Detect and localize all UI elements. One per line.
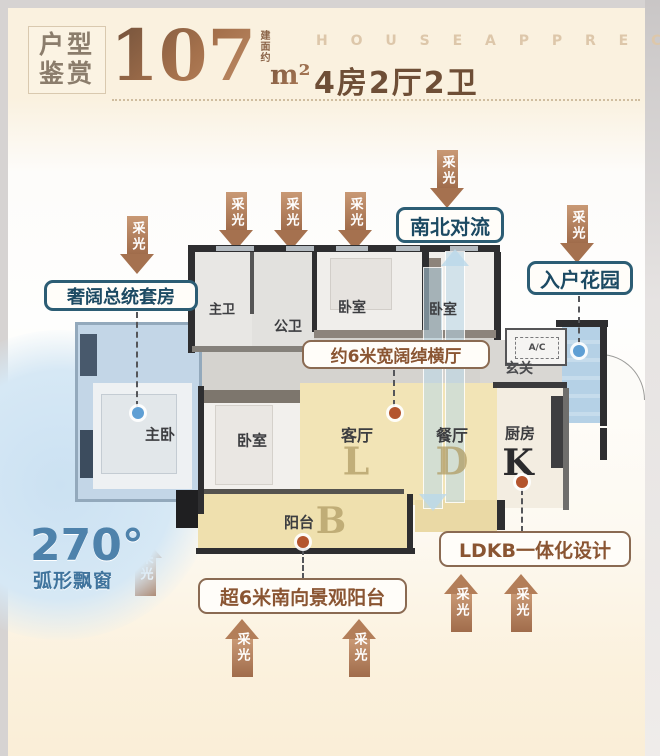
- connector-south-balcony: [302, 549, 304, 579]
- window-top-2: [286, 246, 314, 251]
- callout-entry-garden: 入户花园: [527, 261, 633, 295]
- label-public-bath: 公卫: [274, 316, 302, 336]
- wall-garden-right: [600, 326, 607, 426]
- daylight-label: 采光: [233, 632, 252, 664]
- daylight-label: 采光: [128, 221, 147, 253]
- label-bedroom-topright: 卧室: [429, 299, 457, 319]
- connector-wide-hall: [393, 370, 395, 406]
- callout-presidential-suite: 奢阔总统套房: [44, 280, 198, 311]
- letter-balcony-B: B: [316, 500, 346, 542]
- letter-dining-D: D: [436, 439, 469, 484]
- daylight-arrow-down-4: 采光: [338, 192, 372, 250]
- callout-ns-convection: 南北对流: [396, 207, 504, 243]
- bay-window-label: 弧形飘窗: [33, 566, 113, 593]
- daylight-arrow-up-4: 采光: [225, 619, 259, 677]
- connector-ldkb: [521, 489, 523, 532]
- area-unit: m²: [270, 60, 310, 91]
- wall-garden-right-lower: [600, 428, 607, 460]
- daylight-label: 采光: [346, 197, 365, 229]
- wall-balcony-bottom: [196, 548, 415, 554]
- dot-master-bedroom: [132, 407, 144, 419]
- daylight-label: 采光: [282, 197, 301, 229]
- right-border-strip: [645, 0, 660, 756]
- dot-balcony: [297, 536, 309, 548]
- wall-balcony-right: [407, 494, 413, 552]
- daylight-label: 采光: [350, 632, 369, 664]
- wall-bedroom-bottom: [314, 330, 496, 338]
- arrow-head-icon: [430, 188, 464, 208]
- label-bedroom-top: 卧室: [338, 297, 366, 317]
- wall-publicbath-bedroom: [312, 252, 317, 332]
- wall-corner-block: [176, 490, 198, 528]
- suite-wardrobe: [80, 334, 97, 376]
- wall-kitchen-right: [563, 388, 569, 510]
- label-bedroom-lower: 卧室: [237, 430, 267, 451]
- daylight-arrow-down-3: 采光: [274, 192, 308, 250]
- wall-suite-bedroom: [198, 386, 204, 514]
- label-foyer: 玄关: [505, 358, 533, 378]
- daylight-label: 采光: [568, 210, 587, 242]
- poster-page: 户型 鉴赏 107 建面约 m² H O U S E A P P R E C I…: [0, 0, 660, 756]
- daylight-arrow-down-1: 采光: [120, 216, 154, 274]
- daylight-arrow-down-5: 采光: [430, 150, 464, 208]
- label-balcony: 阳台: [284, 512, 314, 533]
- daylight-label: 采光: [227, 197, 246, 229]
- label-kitchen: 厨房: [505, 423, 535, 444]
- area-prefix: 建面约: [256, 30, 271, 63]
- callout-wide-hall: 约6米宽阔绰横厅: [302, 340, 490, 369]
- connector-presidential: [136, 312, 138, 407]
- wall-diningext-right: [497, 500, 505, 530]
- bedroom-lower-wardrobe: [204, 390, 300, 403]
- subtitle-english: H O U S E A P P R E C I A T I O N: [316, 33, 660, 49]
- wall-living-balcony: [204, 489, 404, 494]
- dot-kitchen: [516, 476, 528, 488]
- daylight-label: 采光: [452, 587, 471, 619]
- daylight-arrow-up-5: 采光: [342, 619, 376, 677]
- letter-living-L: L: [343, 439, 370, 484]
- title-badge-line1: 户型: [39, 31, 95, 60]
- title-badge-line2: 鉴赏: [39, 60, 95, 89]
- room-public-bath: [252, 250, 314, 352]
- daylight-arrow-up-3: 采光: [504, 574, 538, 632]
- window-top-4: [396, 246, 420, 251]
- daylight-arrow-down-6: 采光: [560, 205, 594, 263]
- daylight-arrow-down-2: 采光: [219, 192, 253, 250]
- arrow-head-icon: [560, 243, 594, 263]
- ac-label: A/C: [515, 337, 559, 359]
- window-top-3: [336, 246, 368, 251]
- wall-bath-bottom: [192, 346, 314, 352]
- wall-bath-divider: [250, 252, 254, 314]
- dot-living: [389, 407, 401, 419]
- daylight-label: 采光: [438, 155, 457, 187]
- daylight-arrow-up-2: 采光: [444, 574, 478, 632]
- window-top-1: [216, 246, 254, 251]
- title-badge: 户型 鉴赏: [28, 26, 106, 94]
- label-master-bath: 主卫: [209, 299, 235, 318]
- subtitle-layout: 4房2厅2卫: [314, 58, 479, 102]
- wall-kitchen-top: [493, 382, 567, 388]
- area-number: 107: [110, 14, 256, 97]
- daylight-label: 采光: [512, 587, 531, 619]
- callout-south-balcony: 超6米南向景观阳台: [198, 578, 407, 614]
- bay-degree: 270°: [30, 520, 144, 571]
- wall-right-bedrooms: [494, 252, 501, 340]
- callout-ldkb: LDKB一体化设计: [439, 531, 631, 567]
- connector-entry-garden: [578, 296, 580, 344]
- label-master-bedroom: 主卧: [145, 424, 175, 445]
- header-dotted-divider: [112, 99, 640, 101]
- arrow-head-icon: [120, 254, 154, 274]
- dot-entry-garden: [573, 345, 585, 357]
